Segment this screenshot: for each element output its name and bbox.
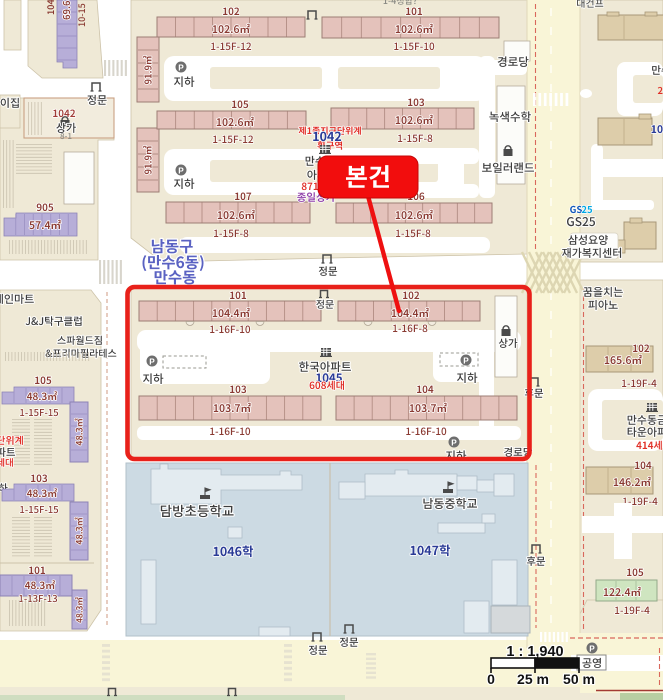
svg-text:50 m: 50 m (563, 671, 595, 687)
svg-text:P: P (589, 644, 595, 653)
svg-text:P: P (149, 357, 155, 366)
svg-text:P: P (178, 63, 184, 72)
svg-text:P: P (463, 356, 469, 365)
svg-text:P: P (451, 438, 457, 447)
svg-text:0: 0 (487, 671, 495, 687)
svg-text:P: P (178, 166, 184, 175)
svg-text:25 m: 25 m (517, 671, 549, 687)
